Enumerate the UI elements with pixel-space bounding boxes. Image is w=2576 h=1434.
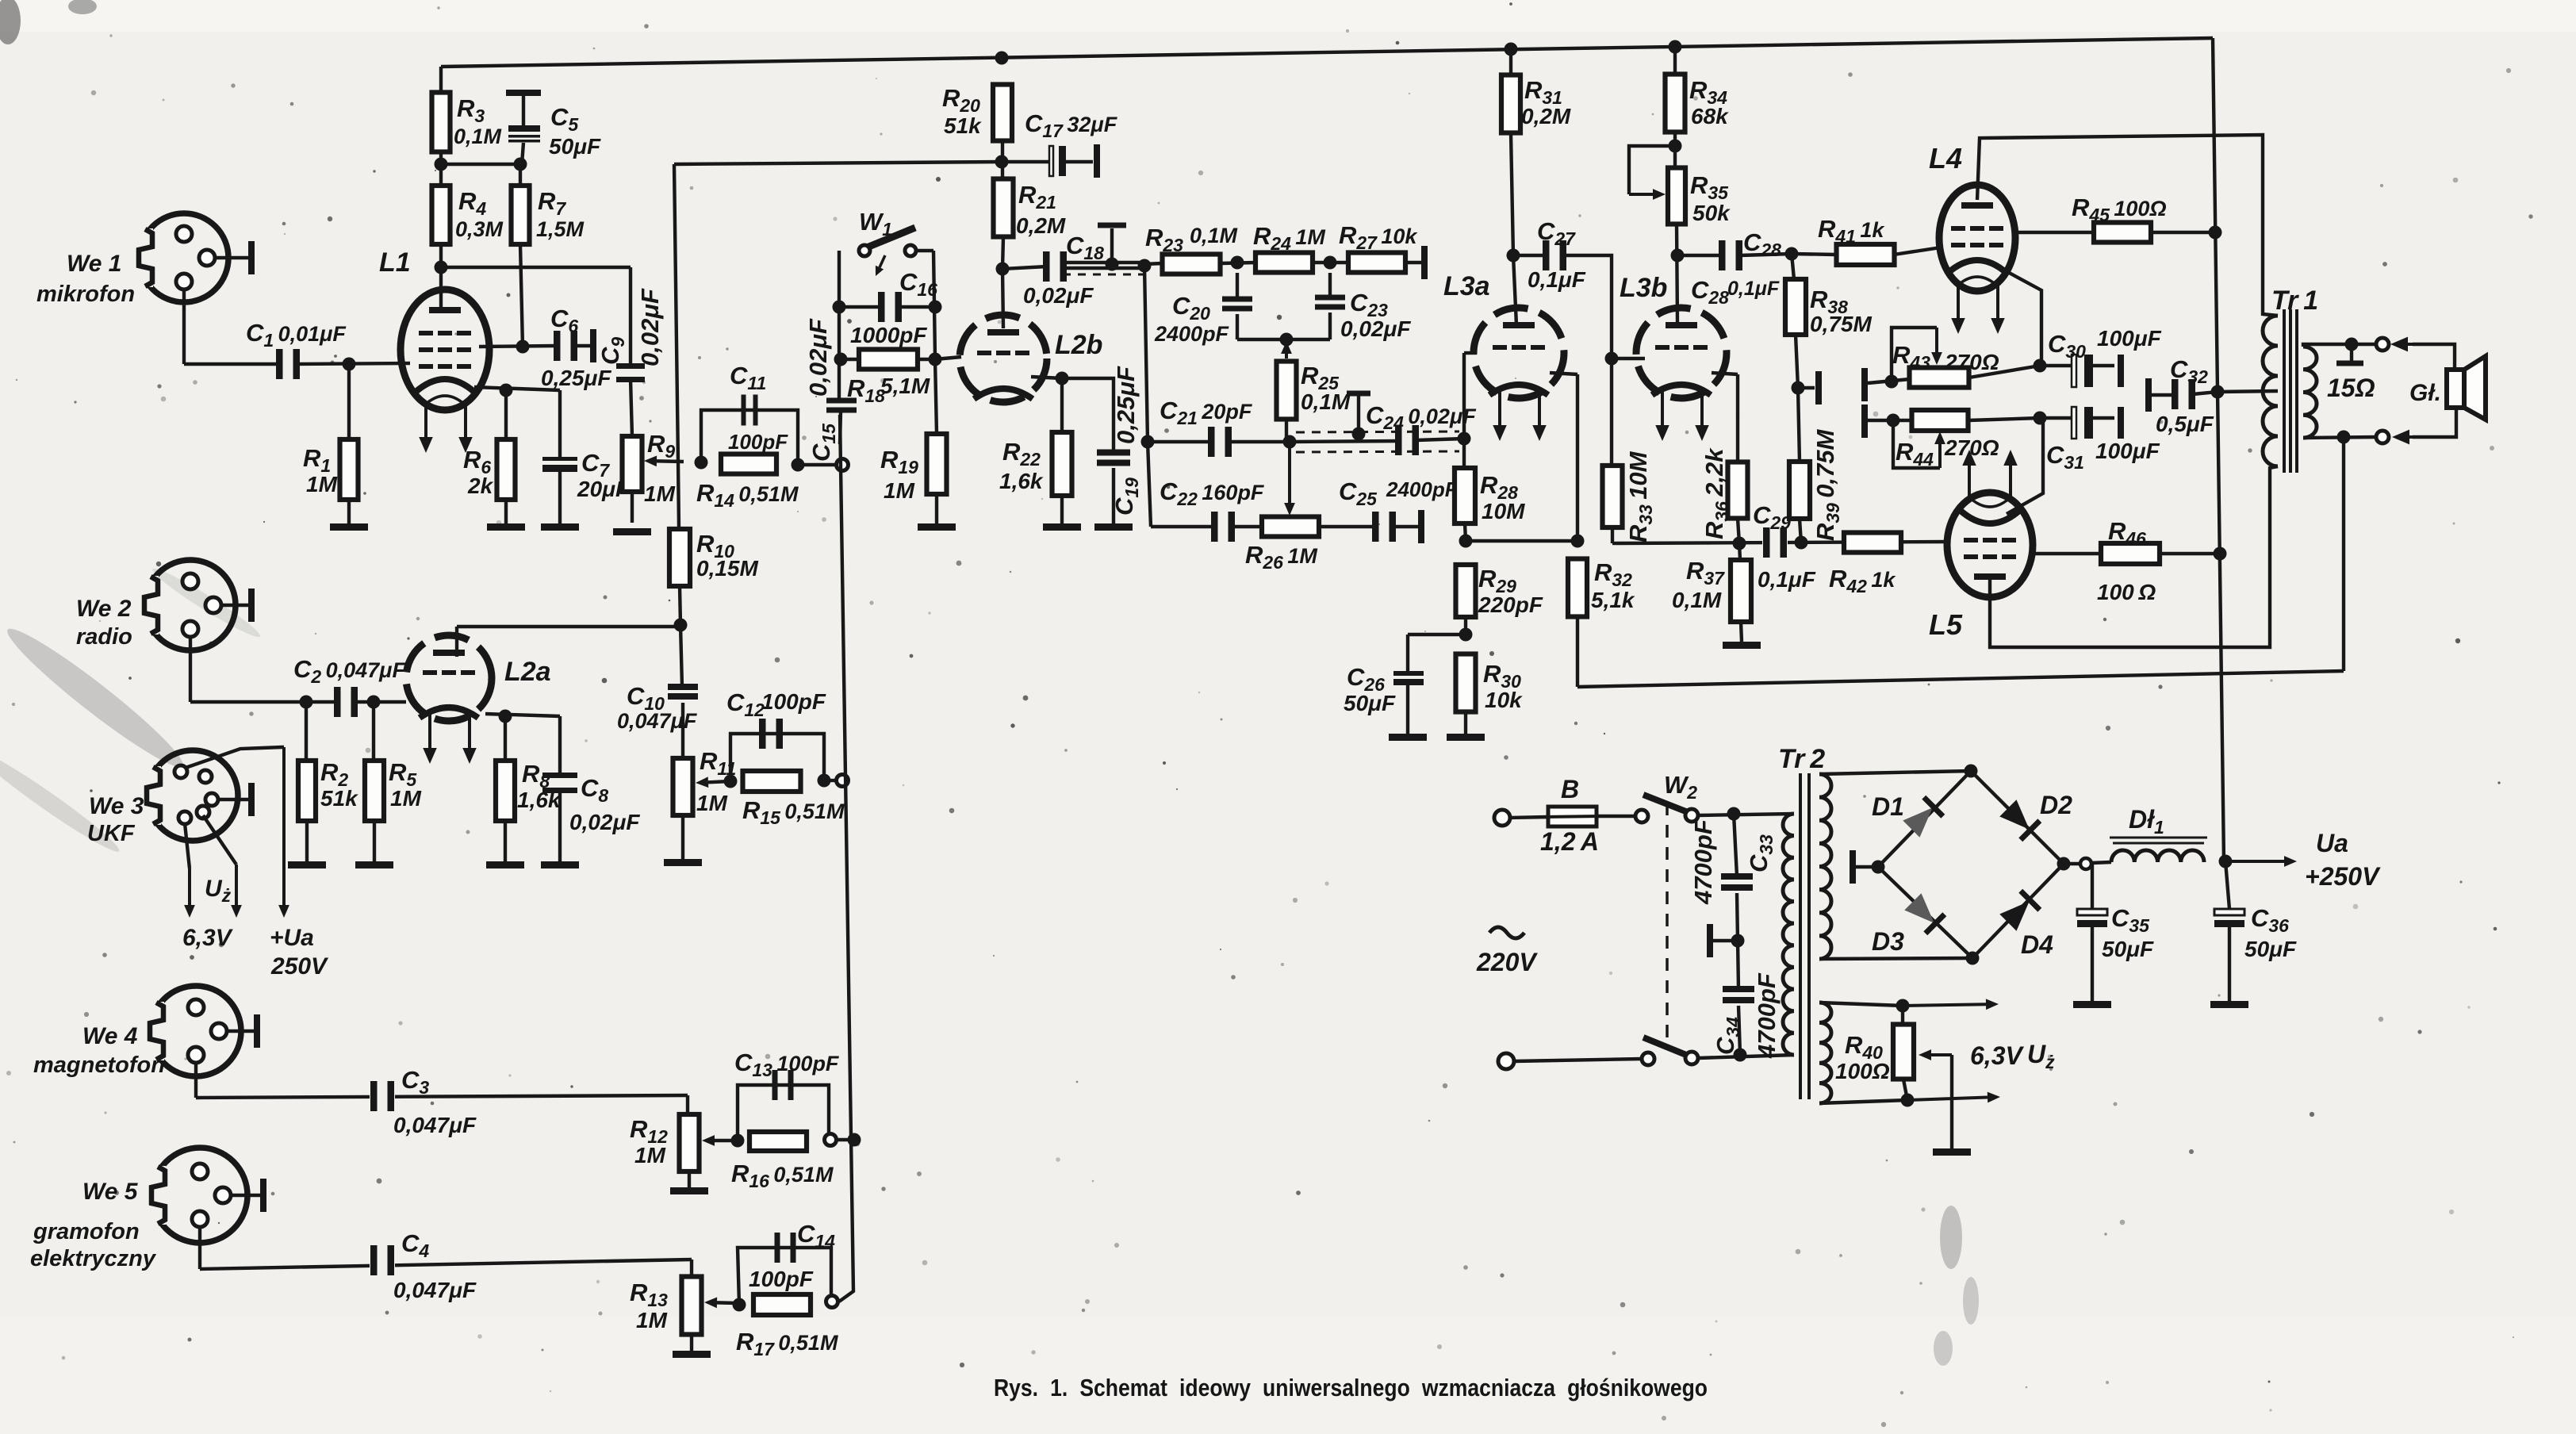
svg-text:L5: L5 — [1929, 608, 1963, 641]
svg-text:0,1M: 0,1M — [1301, 389, 1351, 414]
svg-text:0,1μF: 0,1μF — [1758, 567, 1816, 592]
svg-text:100μF: 100μF — [2097, 326, 2162, 351]
svg-text:0,02μF: 0,02μF — [1023, 283, 1094, 308]
svg-text:6,3V: 6,3V — [182, 925, 234, 951]
svg-text:elektryczny: elektryczny — [30, 1246, 157, 1271]
svg-text:UKF: UKF — [87, 821, 136, 846]
svg-text:Tr 1: Tr 1 — [2271, 286, 2318, 316]
svg-text:1M: 1M — [636, 1308, 668, 1332]
svg-text:0,25μF: 0,25μF — [1112, 366, 1140, 444]
svg-text:1M: 1M — [306, 472, 338, 497]
svg-text:D3: D3 — [1872, 927, 1904, 956]
svg-text:R33 10M: R33 10M — [1624, 451, 1656, 543]
svg-text:5,1k: 5,1k — [1591, 588, 1635, 612]
svg-text:68k: 68k — [1691, 104, 1729, 128]
svg-text:0,2M: 0,2M — [1016, 213, 1066, 238]
svg-text:0,5μF: 0,5μF — [2156, 412, 2214, 436]
svg-text:We 2: We 2 — [76, 596, 132, 622]
svg-text:0,25μF: 0,25μF — [541, 366, 611, 390]
svg-text:mikrofon: mikrofon — [36, 282, 135, 307]
svg-text:1M: 1M — [634, 1143, 666, 1168]
svg-text:0,047μF: 0,047μF — [617, 709, 698, 733]
svg-text:D4: D4 — [2021, 930, 2053, 959]
svg-text:1M: 1M — [696, 791, 728, 815]
svg-text:250V: 250V — [270, 953, 329, 980]
svg-text:0,3M: 0,3M — [455, 217, 504, 241]
svg-text:0,047μF: 0,047μF — [393, 1113, 477, 1137]
svg-text:1,6k: 1,6k — [999, 469, 1044, 493]
svg-text:L2b: L2b — [1055, 330, 1102, 360]
svg-text:We 4: We 4 — [82, 1023, 138, 1049]
svg-text:Tr 2: Tr 2 — [1778, 744, 1825, 774]
svg-text:2400pF: 2400pF — [1154, 322, 1230, 346]
svg-text:Ua: Ua — [2316, 829, 2348, 857]
svg-text:1000pF: 1000pF — [850, 323, 927, 347]
svg-text:0,1μF: 0,1μF — [1528, 267, 1586, 292]
svg-text:L1: L1 — [379, 247, 411, 278]
svg-text:R36 2,2k: R36 2,2k — [1700, 447, 1732, 539]
svg-text:270Ω: 270Ω — [1944, 350, 1999, 374]
svg-text:100Ω: 100Ω — [1835, 1059, 1890, 1083]
svg-text:0,02μF: 0,02μF — [636, 288, 664, 366]
svg-text:L2a: L2a — [504, 657, 551, 687]
svg-text:100pF: 100pF — [728, 430, 788, 454]
svg-text:220pF: 220pF — [1478, 592, 1543, 617]
svg-text:0,1M: 0,1M — [454, 125, 502, 148]
svg-text:D1: D1 — [1872, 792, 1904, 821]
svg-text:+Ua: +Ua — [270, 925, 314, 951]
svg-text:10k: 10k — [1485, 688, 1523, 712]
svg-text:0,2M: 0,2M — [1521, 104, 1571, 128]
svg-text:10M: 10M — [1482, 499, 1525, 523]
svg-text:0,047μF: 0,047μF — [393, 1278, 477, 1302]
svg-text:We 1: We 1 — [67, 251, 121, 277]
svg-text:0,02μF: 0,02μF — [1340, 316, 1411, 341]
svg-text:5,1M: 5,1M — [880, 374, 930, 398]
svg-text:1M: 1M — [390, 786, 422, 811]
svg-text:B: B — [1561, 775, 1579, 803]
svg-text:1,2 A: 1,2 A — [1540, 827, 1599, 856]
svg-text:Gł.: Gł. — [2409, 380, 2441, 406]
svg-text:4700pF: 4700pF — [1689, 819, 1717, 905]
svg-text:6,3V: 6,3V — [1970, 1041, 2024, 1070]
svg-text:2k: 2k — [467, 474, 494, 498]
svg-text:0,02μF: 0,02μF — [804, 318, 832, 397]
svg-text:1M: 1M — [884, 478, 915, 503]
svg-text:50μF: 50μF — [2102, 937, 2154, 961]
svg-text:2400pF: 2400pF — [1386, 477, 1459, 501]
svg-text:0,1μF: 0,1μF — [1727, 278, 1780, 300]
svg-text:100 Ω: 100 Ω — [2097, 580, 2156, 604]
svg-text:L4: L4 — [1929, 142, 1962, 174]
svg-text:0,1M: 0,1M — [1672, 588, 1722, 612]
svg-text:Rys. 1. Schemat ideowy uniwers: Rys. 1. Schemat ideowy uniwersalnego wzm… — [994, 1374, 1708, 1401]
svg-text:1M: 1M — [644, 481, 676, 506]
svg-text:L3b: L3b — [1620, 273, 1667, 303]
svg-text:51k: 51k — [320, 786, 358, 811]
svg-text:radio: radio — [76, 624, 132, 650]
svg-text:100μF: 100μF — [2095, 439, 2160, 463]
svg-text:We 5: We 5 — [82, 1179, 139, 1205]
svg-text:+250V: +250V — [2305, 862, 2381, 891]
svg-text:L3a: L3a — [1443, 271, 1490, 301]
svg-text:0,75M: 0,75M — [1810, 312, 1872, 336]
svg-text:4700pF: 4700pF — [1753, 972, 1781, 1059]
svg-text:gramofon: gramofon — [33, 1219, 140, 1244]
svg-text:0,15M: 0,15M — [696, 556, 758, 581]
svg-text:D2: D2 — [2040, 791, 2072, 819]
svg-text:We 3: We 3 — [89, 793, 144, 819]
svg-text:R39 0,75M: R39 0,75M — [1811, 428, 1843, 541]
svg-text:50k: 50k — [1692, 201, 1731, 225]
svg-text:magnetofon: magnetofon — [33, 1052, 165, 1078]
svg-text:15Ω: 15Ω — [2327, 374, 2375, 402]
svg-text:50μF: 50μF — [1344, 691, 1396, 715]
svg-text:50μF: 50μF — [2244, 937, 2297, 961]
svg-text:0,1M: 0,1M — [1190, 224, 1238, 247]
svg-text:50μF: 50μF — [549, 134, 601, 159]
svg-text:220V: 220V — [1476, 948, 1538, 976]
svg-text:100pF: 100pF — [749, 1267, 814, 1291]
svg-text:1,5M: 1,5M — [536, 217, 585, 241]
svg-text:100pF: 100pF — [761, 689, 826, 714]
svg-text:51k: 51k — [944, 113, 982, 138]
svg-text:0,02μF: 0,02μF — [569, 810, 640, 834]
